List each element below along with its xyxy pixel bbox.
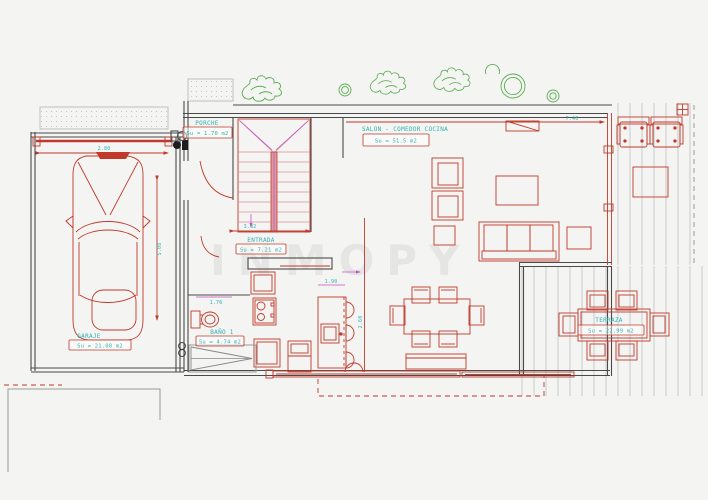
shrub-icon xyxy=(434,68,470,92)
door-jamb xyxy=(266,370,273,378)
garden-plants xyxy=(242,64,559,102)
porch-hatch xyxy=(188,79,233,101)
under-stair-storage xyxy=(189,345,256,372)
overhang-dashed-line xyxy=(318,376,544,396)
dim-bath-width: 1.76 xyxy=(210,300,223,306)
tree-icon xyxy=(342,87,349,94)
dim-salon-width: 7.40 xyxy=(566,116,579,122)
room-name-entrada: ENTRADA xyxy=(247,237,274,244)
tree-icon xyxy=(547,90,559,102)
toilet-icon xyxy=(191,311,219,328)
dim-kitchen-depth: 2.60 xyxy=(358,316,364,329)
armchair xyxy=(432,158,463,188)
room-name-salon: SALON - COMEDOR COCINA xyxy=(362,126,448,133)
kitchen-island xyxy=(318,297,346,368)
annex-outline xyxy=(8,389,160,472)
room-area-salon: Su = 51.5 m2 xyxy=(375,139,417,145)
staircase xyxy=(238,119,310,232)
room-area-garaje: Su = 21.08 m2 xyxy=(77,344,123,350)
car-icon xyxy=(66,156,150,340)
tree-icon xyxy=(504,77,521,94)
room-name-bano: BAÑO 1 xyxy=(210,329,234,336)
room-name-terraza: TERRAZA xyxy=(595,317,622,324)
bar-stools xyxy=(346,302,354,368)
armchair xyxy=(432,191,463,220)
sideboard xyxy=(406,354,466,369)
tree-icon xyxy=(339,84,351,96)
slab-hatch xyxy=(40,107,168,129)
room-area-porche: Su = 1.70 m2 xyxy=(186,131,228,137)
cooktop xyxy=(253,298,276,325)
room-area-terraza: Su = 22.99 m2 xyxy=(588,329,634,335)
dim-garage-width: 2.80 xyxy=(98,146,111,152)
floor-plan-drawing: INMOPY xyxy=(0,0,708,500)
tree-icon xyxy=(550,93,556,99)
shrub-icon xyxy=(242,76,282,102)
tree-icon xyxy=(486,64,500,74)
dining-set xyxy=(390,287,484,369)
dim-entry-width: 3.02 xyxy=(244,224,257,230)
front-door-swing xyxy=(200,161,233,198)
floor-plan-canvas: INMOPY xyxy=(0,0,708,500)
dining-table xyxy=(404,299,470,334)
shrub-icon xyxy=(370,71,406,94)
door-motor-icon xyxy=(182,140,188,150)
room-area-entrada: Su = 7.21 m2 xyxy=(240,248,282,254)
base-cabinet xyxy=(254,339,280,367)
dim-garage-depth: 5.08 xyxy=(157,243,163,256)
dim-island-length: 1.90 xyxy=(325,279,338,285)
room-name-garaje: GARAJE xyxy=(77,333,101,340)
room-area-bano: Su = 4.74 m2 xyxy=(199,340,241,346)
room-name-porche: PORCHE xyxy=(195,120,219,127)
coffee-table xyxy=(496,176,538,205)
side-table xyxy=(567,227,591,249)
fridge xyxy=(288,341,311,372)
sofa xyxy=(479,222,559,261)
door-motor-icon xyxy=(173,141,181,149)
